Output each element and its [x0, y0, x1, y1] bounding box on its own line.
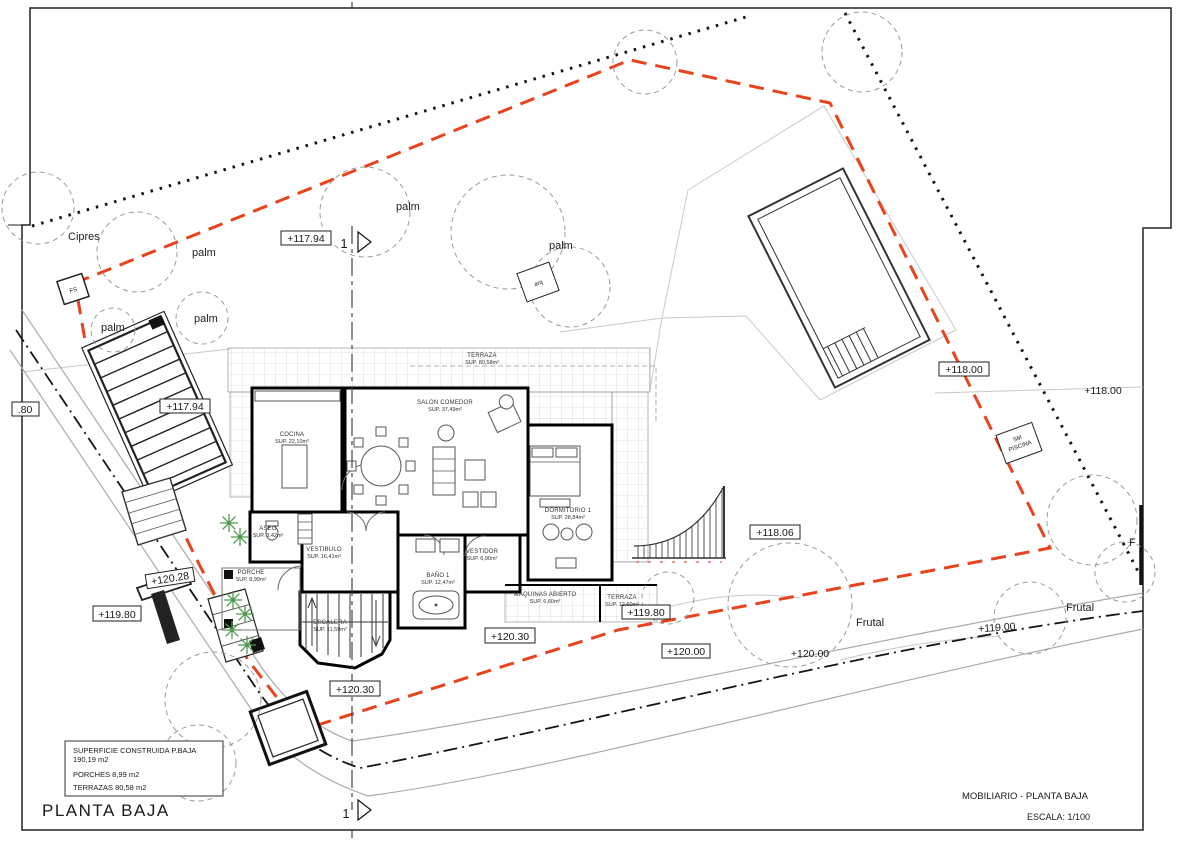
room-vestidor — [465, 535, 520, 592]
section-marker-bottom: 1 — [342, 806, 349, 821]
svg-text:SUP. 3,42m²: SUP. 3,42m² — [253, 533, 284, 539]
level-label: +119.00 — [978, 621, 1016, 636]
svg-text:SUP. 80,58m²: SUP. 80,58m² — [465, 360, 499, 366]
svg-text:TERRAZA: TERRAZA — [607, 595, 636, 601]
svg-text:COCINA: COCINA — [280, 432, 305, 438]
legend-line: SUPERFICIE CONSTRUIDA P.BAJA — [73, 746, 196, 755]
floor-plan-sheet: 1 1 FS arq SM PISCINA +117.94 +117.94 +1… — [0, 0, 1200, 849]
frutal-label-abbrev: F — [1129, 537, 1136, 549]
area-legend: SUPERFICIE CONSTRUIDA P.BAJA 190,19 m2 P… — [65, 741, 223, 796]
level-label: +117.94 — [166, 401, 204, 413]
frutal-label: Frutal — [856, 617, 884, 629]
legend-line: 190,19 m2 — [73, 755, 108, 764]
level-label: +119.80 — [627, 607, 665, 619]
svg-text:PORCHE: PORCHE — [238, 570, 265, 576]
svg-text:SUP. 6,60m²: SUP. 6,60m² — [530, 599, 561, 605]
svg-text:SUP. 8,99m²: SUP. 8,99m² — [236, 577, 267, 583]
level-label: +120.00 — [791, 648, 829, 660]
sheet-scale: ESCALA: 1/100 — [1027, 812, 1090, 822]
svg-text:MAQUINAS ABIERTO: MAQUINAS ABIERTO — [514, 592, 577, 598]
marker-sm-piscina: SM PISCINA — [996, 422, 1042, 463]
svg-text:SUP. 11,59m²: SUP. 11,59m² — [313, 627, 347, 633]
svg-text:DORMITORIO 1: DORMITORIO 1 — [545, 508, 592, 514]
svg-text:SALON COMEDOR: SALON COMEDOR — [417, 400, 473, 406]
svg-text:SUP. 37,49m²: SUP. 37,49m² — [428, 407, 462, 413]
section-marker-top: 1 — [340, 236, 347, 251]
svg-text:SUP. 16,41m²: SUP. 16,41m² — [307, 554, 341, 560]
svg-text:SUP. 12,47m²: SUP. 12,47m² — [421, 580, 455, 586]
svg-text:SUP. 6,90m²: SUP. 6,90m² — [467, 556, 498, 562]
palm-label: palm — [192, 247, 216, 259]
svg-text:ASEO: ASEO — [259, 526, 277, 532]
svg-text:SUP. 22,10m²: SUP. 22,10m² — [275, 439, 309, 445]
svg-text:VESTIBULO: VESTIBULO — [306, 547, 342, 553]
palm-label: palm — [549, 240, 573, 252]
palm-label: palm — [396, 201, 420, 213]
level-label: +117.94 — [287, 233, 325, 245]
planter-structure — [250, 691, 326, 764]
sheet-subtitle: MOBILIARIO - PLANTA BAJA — [962, 791, 1089, 802]
level-label: +120.30 — [336, 684, 374, 696]
svg-text:ESCALERA: ESCALERA — [313, 620, 347, 626]
svg-text:BAÑO 1: BAÑO 1 — [426, 572, 450, 579]
level-label: +118.06 — [756, 527, 794, 539]
level-label: +118.00 — [1084, 385, 1122, 397]
frutal-label: Frutal — [1066, 602, 1094, 614]
level-label: +118.00 — [945, 364, 983, 376]
svg-text:TERRAZA: TERRAZA — [467, 353, 496, 359]
sheet-title: PLANTA BAJA — [42, 801, 170, 820]
cipres-label: Cipres — [68, 231, 100, 243]
legend-line: PORCHES 8,99 m2 — [73, 770, 139, 779]
svg-text:VESTIDOR: VESTIDOR — [466, 549, 499, 555]
palm-label: palm — [101, 322, 125, 334]
level-label: +119.80 — [98, 609, 136, 621]
level-label: +120.30 — [491, 631, 529, 643]
plan-drawing: 1 1 FS arq SM PISCINA +117.94 +117.94 +1… — [0, 0, 1200, 849]
svg-text:SUP. 28,84m²: SUP. 28,84m² — [551, 515, 585, 521]
palm-label: palm — [194, 313, 218, 325]
legend-line: TERRAZAS 80,58 m2 — [73, 783, 146, 792]
level-label: .80 — [18, 404, 33, 416]
pool — [748, 168, 929, 387]
level-label: +120.00 — [667, 646, 705, 658]
svg-text:SUP. 12,60m²: SUP. 12,60m² — [605, 602, 639, 608]
